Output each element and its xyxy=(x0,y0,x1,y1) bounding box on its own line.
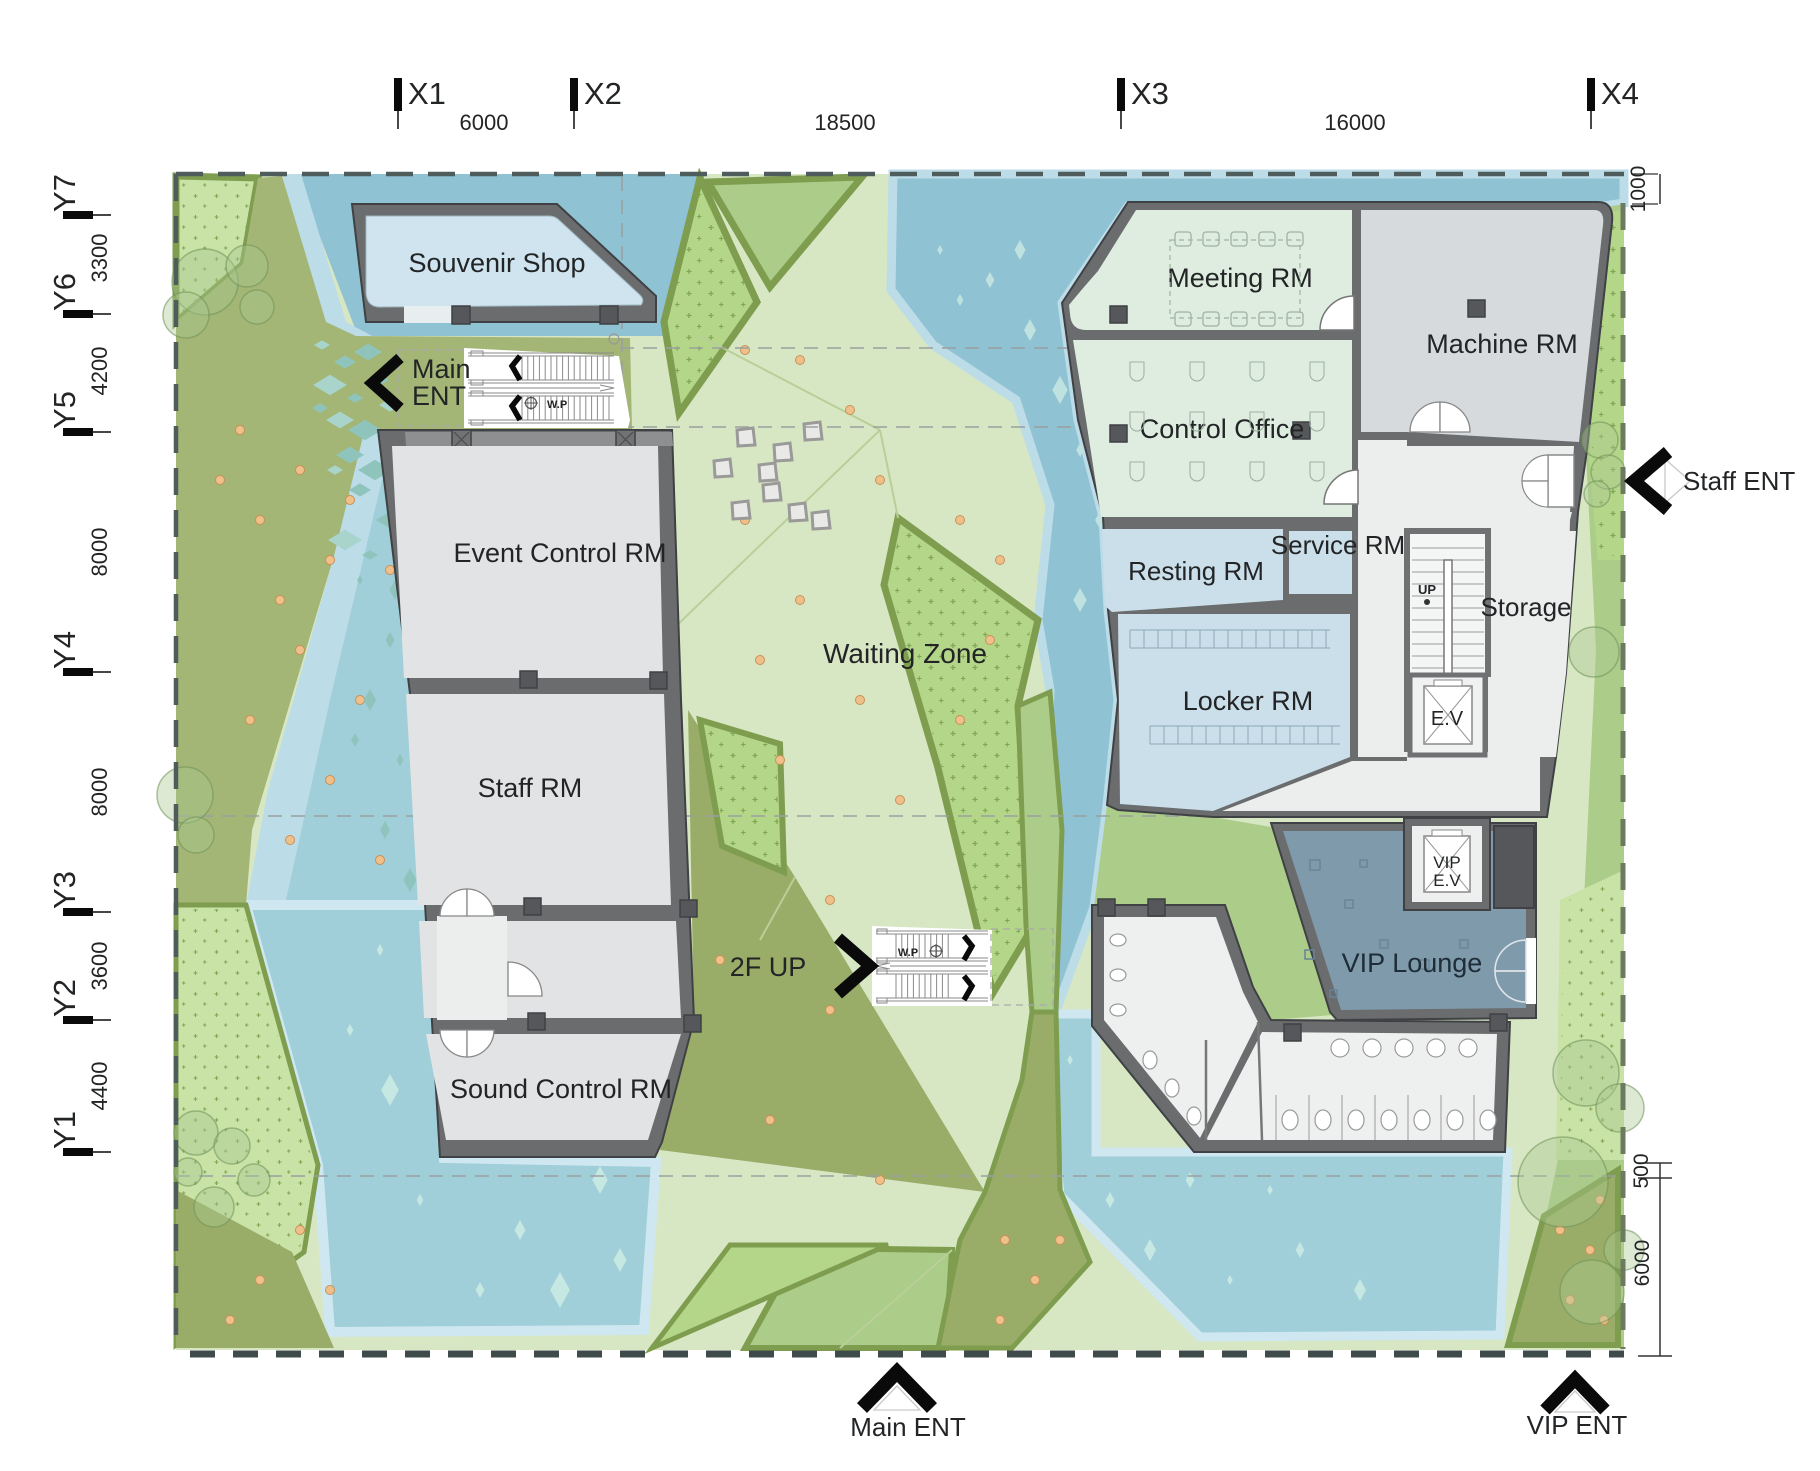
svg-text:Waiting Zone: Waiting Zone xyxy=(823,638,987,669)
svg-text:X2: X2 xyxy=(584,76,622,111)
svg-text:Y5: Y5 xyxy=(47,391,82,429)
svg-text:8000: 8000 xyxy=(87,528,112,577)
svg-text:6000: 6000 xyxy=(460,110,509,135)
svg-text:Staff RM: Staff RM xyxy=(478,773,583,803)
svg-text:3600: 3600 xyxy=(87,942,112,991)
svg-text:W.P: W.P xyxy=(898,947,918,959)
svg-text:Control Office: Control Office xyxy=(1140,414,1305,444)
svg-text:1000: 1000 xyxy=(1627,166,1650,213)
svg-text:Main ENT: Main ENT xyxy=(850,1412,966,1442)
svg-text:3300: 3300 xyxy=(87,234,112,283)
svg-text:E.V: E.V xyxy=(1431,708,1464,730)
svg-text:Locker RM: Locker RM xyxy=(1183,686,1314,716)
svg-text:Staff ENT: Staff ENT xyxy=(1683,466,1795,496)
svg-text:500: 500 xyxy=(1630,1153,1653,1188)
svg-text:2F UP: 2F UP xyxy=(730,952,807,982)
svg-text:8000: 8000 xyxy=(87,768,112,817)
svg-text:Meeting RM: Meeting RM xyxy=(1167,263,1313,293)
svg-text:ENT: ENT xyxy=(412,381,466,411)
svg-text:4200: 4200 xyxy=(87,347,112,396)
svg-text:E.V: E.V xyxy=(1433,871,1461,890)
svg-text:Y1: Y1 xyxy=(47,1111,82,1149)
svg-text:VIP: VIP xyxy=(1433,853,1460,872)
svg-text:Service RM: Service RM xyxy=(1271,530,1405,560)
svg-text:Event Control RM: Event Control RM xyxy=(453,538,666,568)
svg-text:VIP ENT: VIP ENT xyxy=(1527,1410,1628,1440)
svg-text:6000: 6000 xyxy=(1631,1240,1654,1287)
svg-text:18500: 18500 xyxy=(814,110,875,135)
svg-text:Machine RM: Machine RM xyxy=(1426,329,1578,359)
svg-text:W.P: W.P xyxy=(547,399,567,411)
svg-text:UP: UP xyxy=(1418,582,1436,597)
svg-text:VIP Lounge: VIP Lounge xyxy=(1342,948,1483,978)
svg-text:4400: 4400 xyxy=(87,1062,112,1111)
svg-text:Main: Main xyxy=(412,354,471,384)
svg-text:X4: X4 xyxy=(1601,76,1639,111)
svg-text:X3: X3 xyxy=(1131,76,1169,111)
svg-text:X1: X1 xyxy=(408,76,446,111)
svg-text:Y7: Y7 xyxy=(47,174,82,212)
svg-text:Storage: Storage xyxy=(1480,592,1571,622)
svg-text:Resting RM: Resting RM xyxy=(1128,556,1264,586)
svg-text:16000: 16000 xyxy=(1324,110,1385,135)
svg-text:Y2: Y2 xyxy=(47,979,82,1017)
svg-text:Y4: Y4 xyxy=(47,631,82,669)
svg-text:Souvenir Shop: Souvenir Shop xyxy=(408,248,585,278)
svg-text:Y6: Y6 xyxy=(47,273,82,311)
svg-text:Sound Control RM: Sound Control RM xyxy=(450,1074,672,1104)
svg-text:Y3: Y3 xyxy=(47,871,82,909)
